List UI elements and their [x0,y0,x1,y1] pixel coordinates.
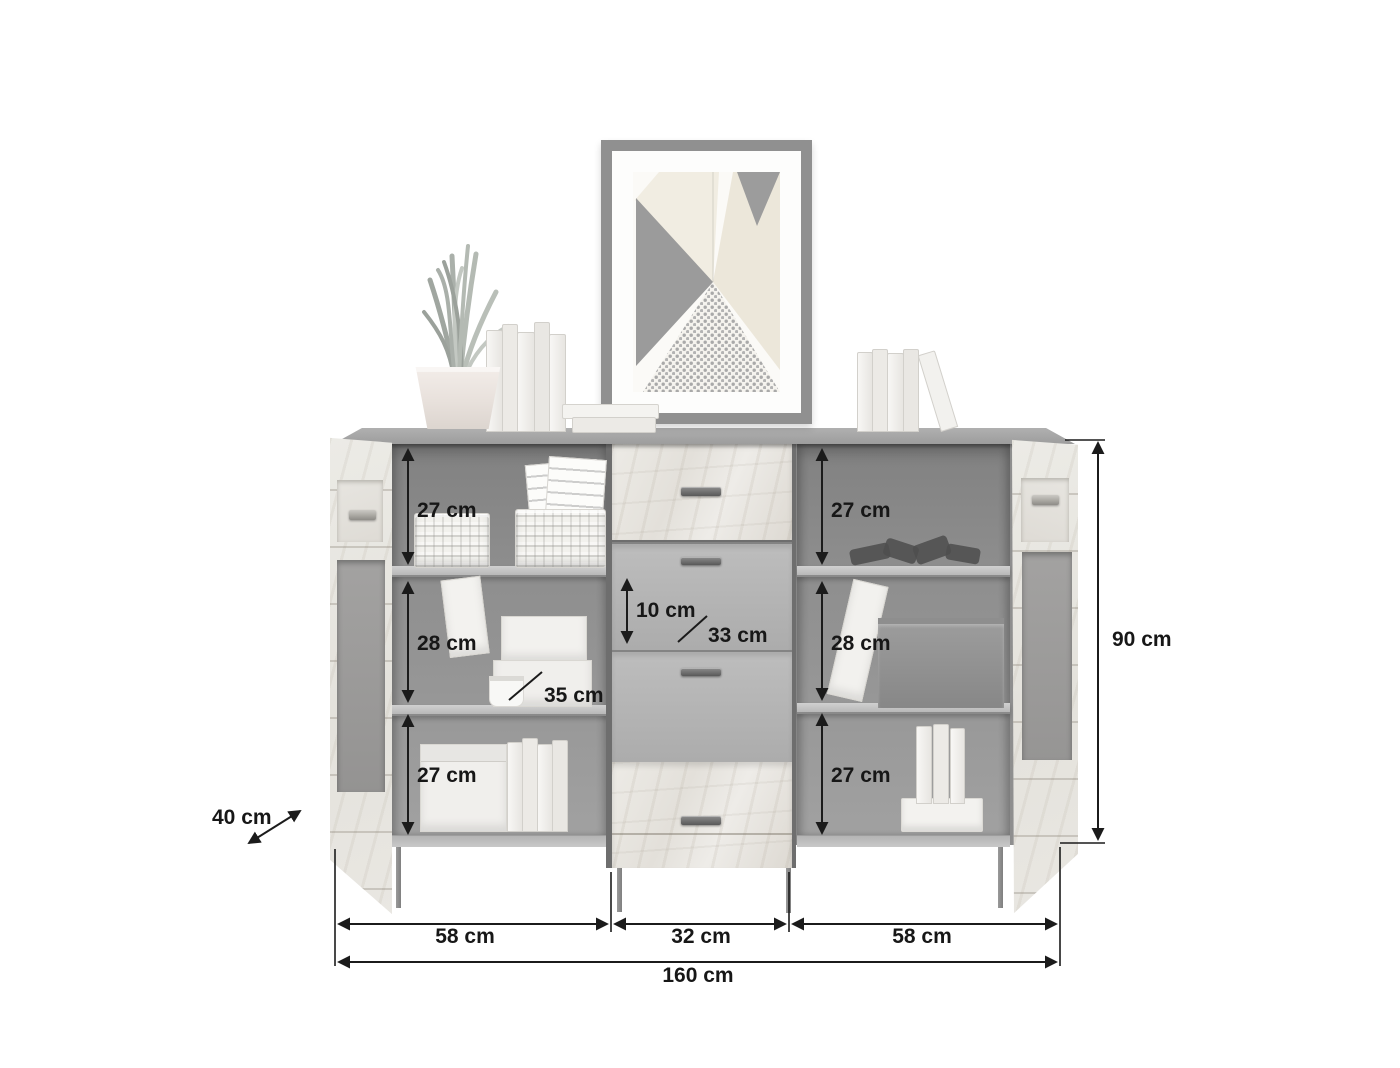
gray-box [878,618,1004,708]
frame-art [633,172,780,392]
dim-label-drawer-width: 33 cm [708,624,768,648]
storage-box [501,616,587,662]
dim-label-compartment-width: 35 cm [544,684,604,708]
book-spine [552,740,568,832]
door-handle [349,510,376,520]
book-stand [901,722,983,832]
drawer-third-gray [612,650,792,762]
right-door-open [1012,438,1078,916]
cabinet-leg [786,868,791,913]
white-cup [489,676,524,707]
dim-label-depth: 40 cm [212,806,272,830]
picture-frame [601,140,812,424]
dim-label-shelf-middle-right: 28 cm [831,632,891,656]
left-compartment-floor [392,835,608,847]
wicker-basket-large [515,509,606,568]
book-spine [534,322,550,432]
book-spine [916,726,932,804]
drawer-handle [681,557,721,565]
door-top-panel [1021,478,1069,542]
magazines [545,456,607,516]
book-spine [933,724,949,804]
dim-label-drawer-height: 10 cm [636,599,696,623]
right-compartment-floor [797,835,1010,847]
dim-label-shelf-middle-left: 28 cm [417,632,477,656]
standing-books-right [857,348,977,432]
book-spine [507,742,523,832]
dim-label-shelf-bottom-right: 27 cm [831,764,891,788]
book-spine [903,349,919,432]
furniture-diagram-canvas: 27 cm 28 cm 27 cm 27 cm 28 cm 27 cm 10 c… [0,0,1400,1068]
dim-label-shelf-top-left: 27 cm [417,499,477,523]
dim-label-width-right: 58 cm [892,925,952,949]
dim-label-shelf-top-right: 27 cm [831,499,891,523]
book-spine [950,728,965,804]
drawer-handle [681,816,721,825]
dim-label-shelf-bottom-left: 27 cm [417,764,477,788]
book-spine [537,744,553,832]
leaning-book [918,350,959,432]
books-bottom-left [507,740,569,832]
door-glass-panel [337,560,385,792]
book-spine [517,332,535,432]
plant-pot [413,367,503,429]
drawer-bottom-wood [612,762,792,868]
book-spine [502,324,518,432]
book-spine [887,353,904,432]
cabinet-leg [617,868,622,912]
box-lid [421,745,506,762]
dim-label-width-total: 160 cm [662,964,733,988]
drawer-bottom-divider [612,833,792,835]
book-spine [522,738,538,832]
cabinet-leg [396,846,401,908]
dim-label-height: 90 cm [1112,628,1172,652]
stacked-books [558,404,658,432]
left-door-open [330,434,392,918]
cabinet-leg [998,846,1003,908]
door-glass-panel [1022,552,1072,760]
storage-box [420,744,507,832]
book-spine [857,352,873,432]
book-spine [872,349,888,432]
dim-label-width-center: 32 cm [671,925,731,949]
stacked-book [572,417,656,433]
drawer-handle [681,668,721,676]
door-handle [1032,495,1059,505]
cabinet-top-shadow [367,444,1040,449]
dark-item [945,543,981,565]
dark-items-cluster [848,534,990,568]
dim-label-width-left: 58 cm [435,925,495,949]
drawer-handle [681,487,721,496]
